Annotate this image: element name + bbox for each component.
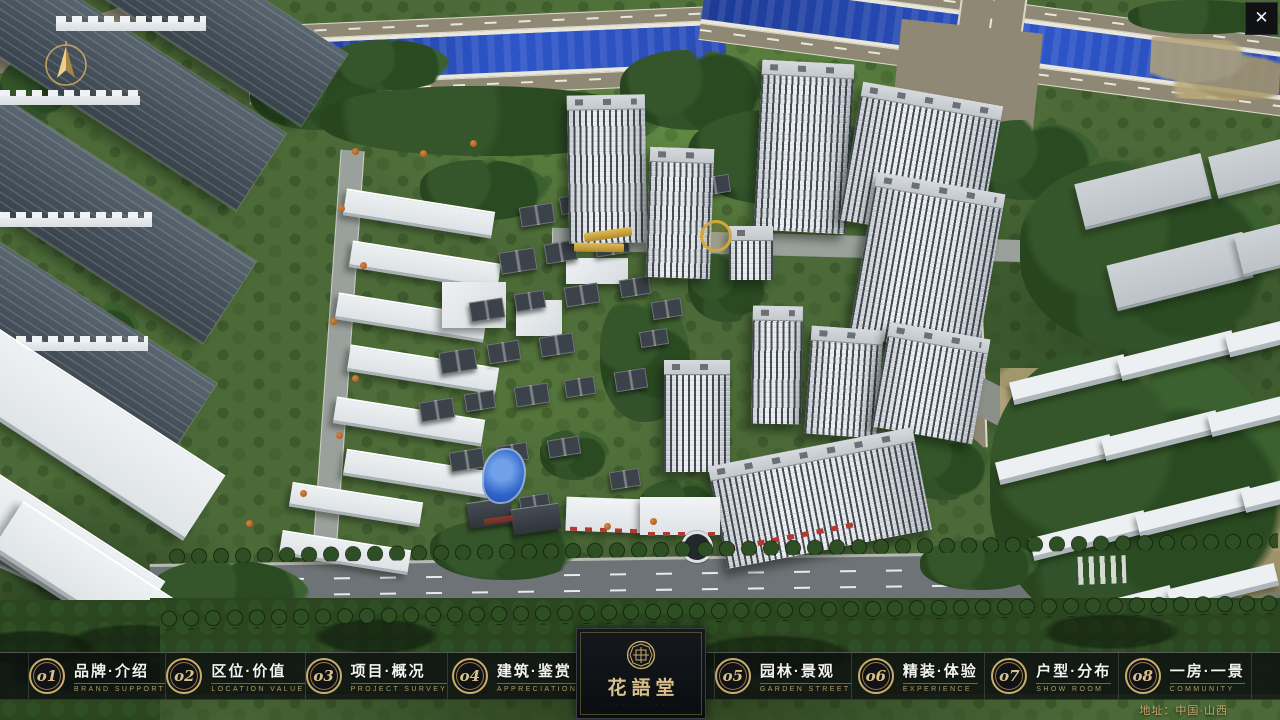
rooftop-parapet [56, 16, 206, 31]
nav-number-badge: o3 [306, 658, 342, 694]
close-icon[interactable]: ✕ [1245, 2, 1278, 35]
tree-cluster [330, 40, 450, 90]
crosswalk [1078, 555, 1127, 585]
rooftop-parapet [0, 212, 152, 227]
highrise-tower [751, 306, 803, 425]
nav-item-label-zh: 建筑·鉴赏 [497, 660, 572, 681]
aerial-masterplan-render [0, 0, 1280, 720]
nav-item-label-en: COMMUNITY [1170, 683, 1245, 693]
nav-item-label-en: BRAND SUPPORT [74, 683, 165, 693]
gold-art-feature [700, 220, 732, 252]
nav-item-label-en: SHOW ROOM [1036, 683, 1111, 693]
nav-item-label-en: LOCATION VALUE [211, 683, 304, 693]
shop-awnings [648, 532, 724, 536]
nav-number-badge: o5 [715, 658, 751, 694]
nav-item-number: o7 [999, 667, 1019, 685]
nav-item-label-zh: 户型·分布 [1036, 660, 1111, 681]
ornamental-tree [360, 262, 367, 269]
ornamental-tree [300, 490, 307, 497]
shuttle-bus [574, 243, 624, 253]
nav-item-floorplan-distribution[interactable]: o7 户型·分布SHOW ROOM [984, 653, 1117, 699]
nav-number-badge: o4 [452, 658, 488, 694]
ornamental-tree [604, 523, 611, 530]
nav-item-label-en: PROJECT SURVEY [351, 683, 448, 693]
highrise-tower [664, 360, 730, 472]
nav-item-label-en: APPRECIATION [497, 683, 577, 693]
ornamental-tree [246, 520, 253, 527]
nav-number-badge: o6 [858, 658, 894, 694]
ornamental-tree [420, 150, 427, 157]
nav-item-label-zh: 区位·价值 [211, 660, 286, 681]
compass-north-icon [42, 40, 90, 88]
ornamental-tree [470, 140, 477, 147]
ornamental-tree [336, 432, 343, 439]
nav-number-badge: o1 [29, 658, 65, 694]
brand-seal-icon [626, 640, 656, 670]
nav-item-project-survey[interactable]: o3 项目·概况PROJECT SURVEY [305, 653, 448, 699]
nav-item-label-zh: 精装·体验 [903, 660, 978, 681]
ornamental-tree [352, 148, 359, 155]
nav-item-label-zh: 一房·一景 [1170, 660, 1245, 681]
nav-number-badge: o2 [166, 658, 202, 694]
nav-item-number: o3 [313, 667, 333, 685]
nav-item-architecture[interactable]: o4 建筑·鉴赏APPRECIATION [447, 653, 581, 699]
ornamental-tree [330, 318, 337, 325]
nav-item-label-en: EXPERIENCE [903, 683, 978, 693]
footpath-ground [1149, 37, 1280, 104]
ornamental-tree [352, 375, 359, 382]
highrise-tower [754, 60, 855, 235]
highrise-tower [872, 322, 991, 444]
nav-item-label-en: GARDEN STREET [760, 683, 851, 693]
nav-item-label-zh: 品牌·介绍 [74, 660, 149, 681]
project-logo-panel[interactable]: 花語堂 · · · · · · · · · · · · [576, 628, 706, 719]
highrise-tower [567, 94, 648, 243]
ornamental-tree [338, 205, 345, 212]
highrise-tower [646, 147, 714, 279]
nav-item-interior-experience[interactable]: o6 精装·体验EXPERIENCE [851, 653, 984, 699]
project-logo-title: 花語堂 [602, 673, 679, 700]
nav-item-label-zh: 园林·景观 [760, 660, 835, 681]
nav-item-number: o2 [174, 667, 194, 685]
highrise-tower [729, 226, 773, 280]
nav-item-number: o1 [37, 667, 57, 685]
project-logo-tagline: · · · · · · · · · · · · [604, 703, 678, 707]
sales-presentation-window: ✕ o1 品牌·介绍BRAND SUPPORT o2 区位·价值LOCATION… [0, 0, 1280, 720]
nav-item-number: o5 [723, 667, 743, 685]
nav-item-label-zh: 项目·概况 [351, 660, 426, 681]
nav-number-badge: o7 [991, 658, 1027, 694]
nav-item-number: o6 [866, 667, 886, 685]
ornamental-tree [650, 518, 657, 525]
entrance-building [640, 497, 720, 535]
nav-item-number: o8 [1133, 667, 1153, 685]
nav-item-one-room-one-view[interactable]: o8 一房·一景COMMUNITY [1118, 653, 1252, 699]
project-address: 地址：中国·山西 [1139, 702, 1228, 718]
nav-item-garden-landscape[interactable]: o5 园林·景观GARDEN STREET [714, 653, 851, 699]
rooftop-parapet [0, 90, 140, 105]
nav-item-number: o4 [460, 667, 480, 685]
nav-number-badge: o8 [1125, 658, 1161, 694]
nav-item-brand-intro[interactable]: o1 品牌·介绍BRAND SUPPORT [28, 653, 165, 699]
nav-item-location-value[interactable]: o2 区位·价值LOCATION VALUE [165, 653, 304, 699]
